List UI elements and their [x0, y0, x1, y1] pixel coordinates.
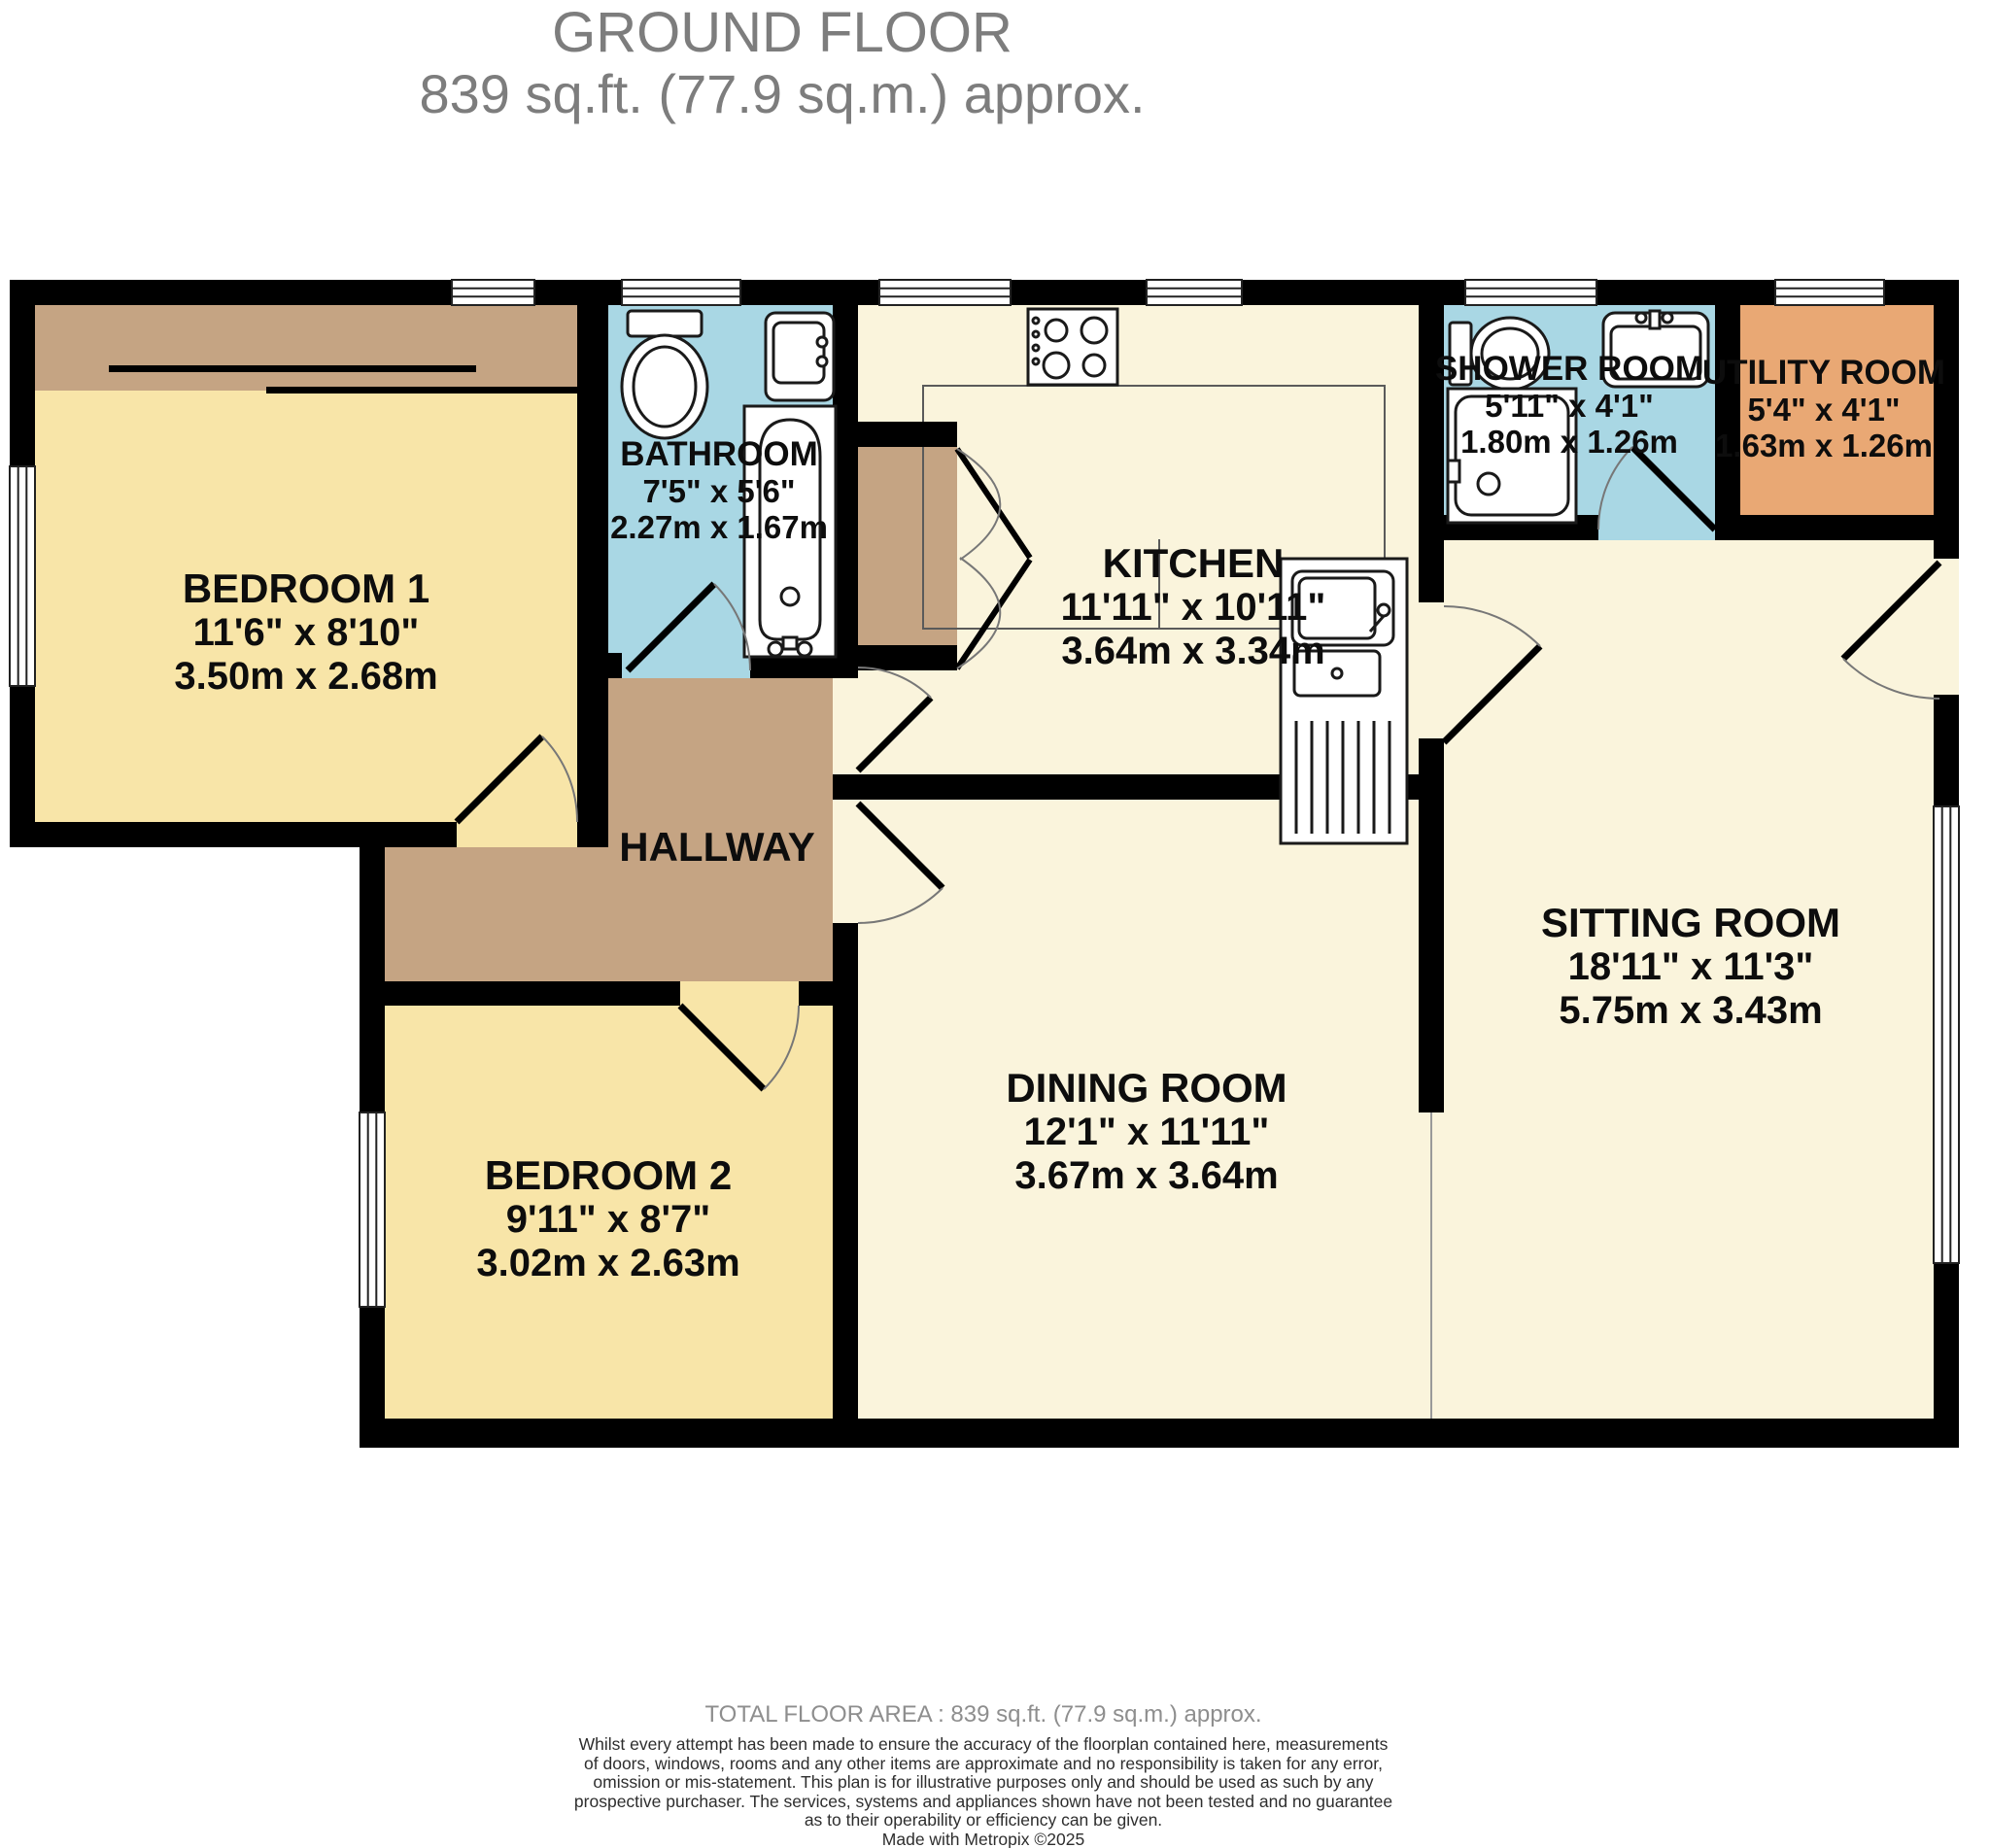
hallway-fill-west — [385, 847, 602, 981]
room-name: SHOWER ROOM — [1435, 350, 1703, 388]
floorplan-page: GROUND FLOOR 839 sq.ft. (77.9 sq.m.) app… — [0, 0, 1990, 1848]
room-dim-imperial: 5'11" x 4'1" — [1435, 388, 1703, 424]
room-dim-imperial: 12'1" x 11'11" — [1006, 1111, 1287, 1154]
disclaimer-line: omission or mis-statement. This plan is … — [574, 1773, 1392, 1793]
room-dim-metric: 3.02m x 2.63m — [476, 1242, 739, 1285]
opening-entrance-door — [1934, 559, 1959, 695]
room-label-kitchen: KITCHEN 11'11" x 10'11" 3.64m x 3.34m — [1061, 540, 1326, 673]
room-label-bedroom-2: BEDROOM 2 9'11" x 8'7" 3.02m x 2.63m — [476, 1152, 739, 1285]
title-floor-area: 839 sq.ft. (77.9 sq.m.) approx. — [419, 64, 1145, 124]
room-label-utility-room: UTILITY ROOM 5'4" x 4'1" 1.63m x 1.26m — [1702, 354, 1945, 463]
window-top-bedroom1 — [452, 280, 534, 305]
opening-hall-bedroom1 — [457, 822, 577, 847]
room-dim-metric: 1.63m x 1.26m — [1702, 428, 1945, 463]
room-label-sitting-room: SITTING ROOM 18'11" x 11'3" 5.75m x 3.43… — [1541, 900, 1840, 1033]
window-top-shower — [1465, 280, 1596, 305]
page-title: GROUND FLOOR 839 sq.ft. (77.9 sq.m.) app… — [419, 2, 1145, 124]
room-name: KITCHEN — [1061, 540, 1326, 586]
disclaimer-line: Whilst every attempt has been made to en… — [574, 1735, 1392, 1755]
kitchen-cupboard-fill — [858, 447, 957, 645]
room-name: DINING ROOM — [1006, 1065, 1287, 1111]
disclaimer-line: prospective purchaser. The services, sys… — [574, 1793, 1392, 1812]
title-floor-name: GROUND FLOOR — [419, 2, 1145, 64]
room-dim-metric: 3.64m x 3.34m — [1061, 630, 1326, 673]
window-top-kitchen-left — [879, 280, 1011, 305]
room-name: BEDROOM 1 — [174, 565, 437, 611]
bathroom-sink-icon — [766, 313, 834, 400]
room-dim-metric: 2.27m x 1.67m — [610, 509, 828, 545]
room-name: BATHROOM — [610, 435, 828, 473]
disclaimer-line: as to their operability or efficiency ca… — [574, 1811, 1392, 1831]
window-top-kitchen-right — [1147, 280, 1242, 305]
opening-hall-dining — [833, 800, 858, 923]
room-name: HALLWAY — [619, 824, 814, 870]
room-name: UTILITY ROOM — [1702, 354, 1945, 392]
room-dim-imperial: 11'6" x 8'10" — [174, 611, 437, 655]
room-dim-imperial: 5'4" x 4'1" — [1702, 392, 1945, 428]
room-dim-imperial: 11'11" x 10'11" — [1061, 586, 1326, 630]
room-fills — [35, 305, 1959, 1419]
opening-kitchen-sitting — [1415, 602, 1448, 738]
window-top-bathroom — [622, 280, 740, 305]
window-bedroom1-left — [10, 466, 35, 686]
room-label-shower-room: SHOWER ROOM 5'11" x 4'1" 1.80m x 1.26m — [1435, 350, 1703, 460]
room-dim-imperial: 7'5" x 5'6" — [610, 473, 828, 509]
room-label-hallway: HALLWAY — [619, 824, 814, 870]
opening-hall-bedroom2 — [680, 981, 799, 1006]
window-bedroom2-left — [360, 1112, 385, 1307]
room-dim-metric: 3.67m x 3.64m — [1006, 1154, 1287, 1198]
room-name: SITTING ROOM — [1541, 900, 1840, 945]
room-label-dining-room: DINING ROOM 12'1" x 11'11" 3.67m x 3.64m — [1006, 1065, 1287, 1198]
room-dim-metric: 5.75m x 3.43m — [1541, 989, 1840, 1033]
metropix-credit: Made with Metropix ©2025 — [574, 1831, 1392, 1848]
room-name: BEDROOM 2 — [476, 1152, 739, 1198]
room-dim-metric: 1.80m x 1.26m — [1435, 424, 1703, 460]
bathroom-toilet-icon — [622, 311, 707, 438]
kitchen-hob-icon — [1028, 309, 1117, 385]
opening-hall-kitchen — [833, 667, 858, 774]
wardrobe-fill — [35, 305, 577, 391]
room-dim-metric: 3.50m x 2.68m — [174, 655, 437, 699]
room-label-bedroom-1: BEDROOM 1 11'6" x 8'10" 3.50m x 2.68m — [174, 565, 437, 699]
disclaimer-line: of doors, windows, rooms and any other i… — [574, 1755, 1392, 1774]
room-dim-imperial: 9'11" x 8'7" — [476, 1198, 739, 1242]
room-label-bathroom: BATHROOM 7'5" x 5'6" 2.27m x 1.67m — [610, 435, 828, 545]
total-floor-area-text: TOTAL FLOOR AREA : 839 sq.ft. (77.9 sq.m… — [574, 1700, 1392, 1729]
footer: TOTAL FLOOR AREA : 839 sq.ft. (77.9 sq.m… — [574, 1700, 1392, 1848]
room-dim-imperial: 18'11" x 11'3" — [1541, 945, 1840, 989]
window-sitting-right — [1934, 806, 1959, 1263]
opening-shower-door — [1598, 515, 1715, 540]
window-top-utility — [1775, 280, 1884, 305]
